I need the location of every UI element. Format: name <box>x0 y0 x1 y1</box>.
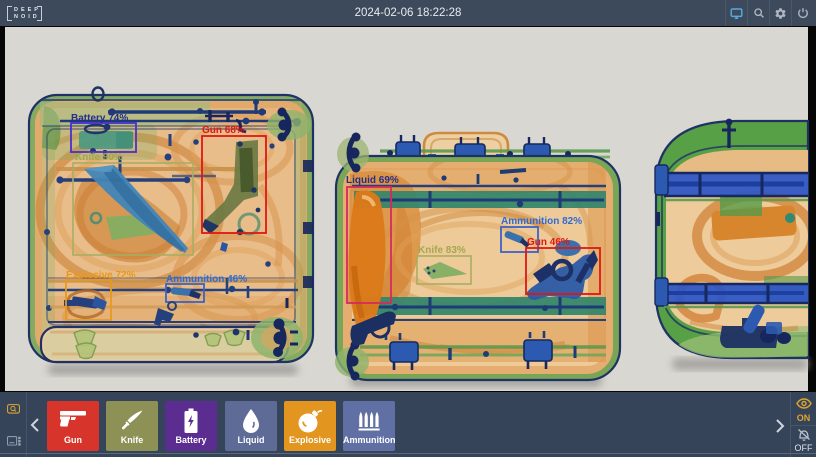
svg-text:Ammunition 46%: Ammunition 46% <box>166 274 247 285</box>
svg-text:Knife 83%: Knife 83% <box>418 245 466 256</box>
svg-text:Gun 46%: Gun 46% <box>527 237 570 248</box>
svg-text:Knife 90%: Knife 90% <box>75 152 123 163</box>
svg-text:Explosive 72%: Explosive 72% <box>66 270 136 281</box>
svg-text:Battery 74%: Battery 74% <box>71 113 128 124</box>
svg-text:Liquid 69%: Liquid 69% <box>346 175 399 186</box>
svg-text:Ammunition 82%: Ammunition 82% <box>501 216 582 227</box>
svg-text:Gun 68%: Gun 68% <box>202 125 245 136</box>
